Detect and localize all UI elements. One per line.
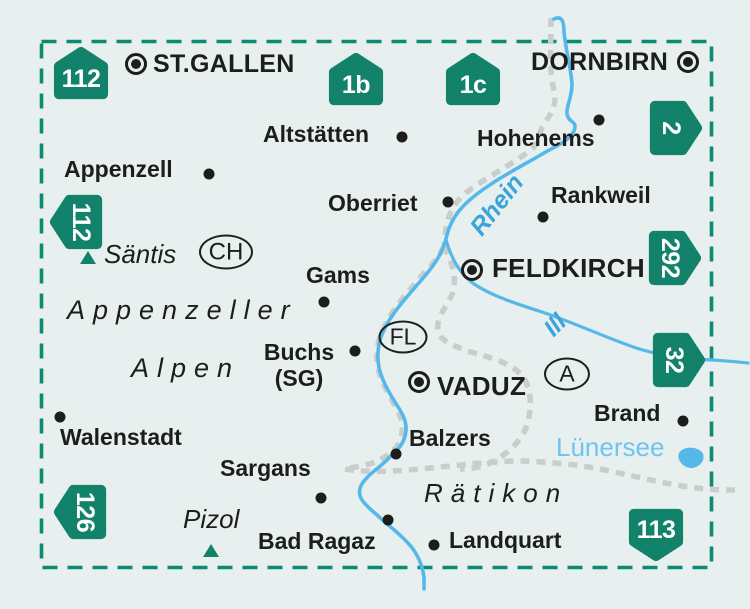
map-sheet-badge-112-nw[interactable]: 112 <box>52 45 110 103</box>
capital-icon-st-gallen <box>125 53 147 75</box>
region-label-raetikon: Rätikon <box>424 479 568 508</box>
city-label-feldkirch: FELDKIRCH <box>492 254 645 283</box>
badge-number: 126 <box>56 483 114 541</box>
region-label-appenzeller: Appenzeller <box>67 295 298 325</box>
country-oval-a: A <box>544 358 590 391</box>
map-sheet-badge-292[interactable]: 292 <box>645 229 703 287</box>
badge-number: 2 <box>642 99 700 157</box>
town-label-brand: Brand <box>594 401 660 427</box>
town-dot-landquart <box>429 540 440 551</box>
town-label-balzers: Balzers <box>409 426 491 452</box>
city-label-st-gallen: ST.GALLEN <box>153 50 295 78</box>
country-oval-ch: CH <box>199 235 253 270</box>
town-label-altstaetten: Altstätten <box>263 122 369 148</box>
town-label-rankweil: Rankweil <box>551 183 651 209</box>
pizol-peak-icon <box>203 544 219 557</box>
badge-number: 1b <box>327 56 385 114</box>
capital-icon-dornbirn <box>677 51 699 73</box>
town-dot-sargans <box>316 493 327 504</box>
badge-number: 292 <box>641 229 699 287</box>
town-dot-balzers <box>391 449 402 460</box>
peak-label-pizol: Pizol <box>183 505 239 534</box>
map-sheet-badge-112-w[interactable]: 112 <box>48 193 106 251</box>
town-label-hohenems: Hohenems <box>477 126 595 152</box>
town-label-buchs-line2: (SG) <box>247 366 351 392</box>
map-sheet-badge-126[interactable]: 126 <box>52 483 110 541</box>
town-label-bad-ragaz: Bad Ragaz <box>258 529 376 555</box>
city-label-dornbirn: DORNBIRN <box>531 48 668 76</box>
capital-icon-inner-dot <box>683 57 693 67</box>
map-sheet-badge-1b[interactable]: 1b <box>327 51 385 109</box>
capital-icon-vaduz <box>408 371 430 393</box>
capital-icon-inner-dot <box>131 59 141 69</box>
town-label-buchs-line1: Buchs <box>247 340 351 366</box>
town-label-oberriet: Oberriet <box>328 191 417 217</box>
town-label-sargans: Sargans <box>220 456 311 482</box>
town-dot-appenzell <box>204 169 215 180</box>
badge-number: 112 <box>52 193 110 251</box>
capital-icon-inner-dot <box>467 265 477 275</box>
town-dot-buchs <box>350 346 361 357</box>
town-dot-bad-ragaz <box>383 515 394 526</box>
town-dot-walenstadt <box>55 412 66 423</box>
badge-number: 113 <box>627 501 685 559</box>
town-dot-hohenems <box>594 115 605 126</box>
town-dot-gams <box>319 297 330 308</box>
peak-label-saentis: Säntis <box>104 240 176 269</box>
map-sheet-badge-1c[interactable]: 1c <box>444 51 502 109</box>
luenersee-lake <box>678 448 703 468</box>
town-dot-altstaetten <box>397 132 408 143</box>
town-dot-brand <box>678 416 689 427</box>
saentis-peak-icon <box>80 251 96 264</box>
city-label-vaduz: VADUZ <box>437 372 526 401</box>
capital-icon-feldkirch <box>461 259 483 281</box>
map-sheet-badge-2[interactable]: 2 <box>646 99 704 157</box>
town-label-walenstadt: Walenstadt <box>60 425 182 451</box>
badge-number: 32 <box>645 331 703 389</box>
country-oval-fl: FL <box>379 321 428 354</box>
map-sheet-badge-113[interactable]: 113 <box>627 505 685 563</box>
badge-number: 112 <box>52 50 110 108</box>
town-label-gams: Gams <box>306 263 370 289</box>
town-dot-rankweil <box>538 212 549 223</box>
country-code-label: A <box>559 361 574 388</box>
capital-icon-inner-dot <box>414 377 424 387</box>
badge-number: 1c <box>444 56 502 114</box>
town-label-landquart: Landquart <box>449 528 561 554</box>
lake-label-luenersee: Lünersee <box>556 433 664 462</box>
map-canvas: CH FL A 112 1b 1c 2 112 292 32 126 113 S… <box>0 0 750 609</box>
town-label-buchs-sg: Buchs (SG) <box>247 340 351 392</box>
country-code-label: CH <box>209 238 244 266</box>
map-sheet-badge-32[interactable]: 32 <box>649 331 707 389</box>
country-code-label: FL <box>390 324 417 351</box>
town-dot-oberriet <box>443 197 454 208</box>
town-label-appenzell: Appenzell <box>64 157 173 183</box>
region-label-alpen: Alpen <box>131 353 240 383</box>
